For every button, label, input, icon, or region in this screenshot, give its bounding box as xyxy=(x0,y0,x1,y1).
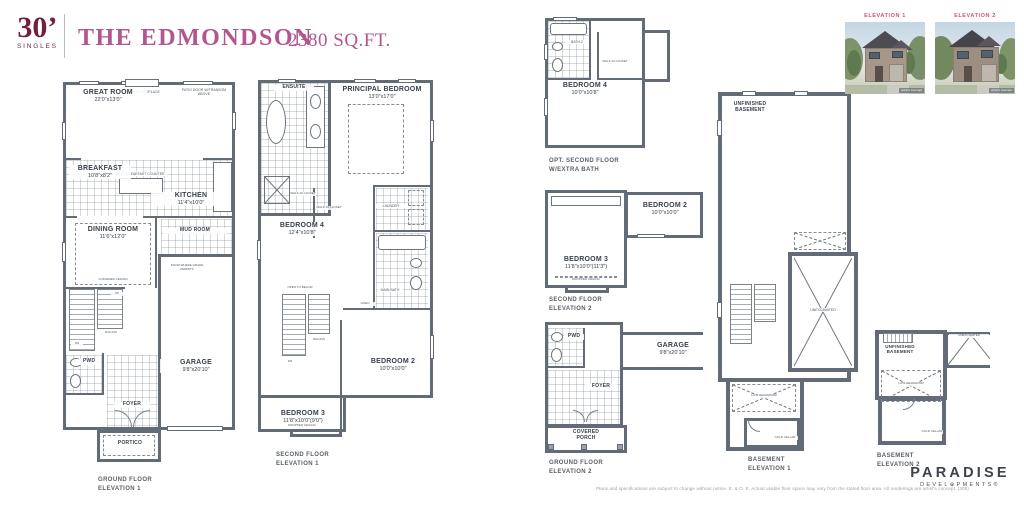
walk-in-closet-note: WALK-IN CLOSET xyxy=(601,60,629,64)
window-symbol xyxy=(742,91,756,96)
window-symbol xyxy=(354,79,376,83)
open-to-below-note: OPEN TO BELOW xyxy=(280,286,320,290)
house-garage-door xyxy=(889,64,904,82)
low-headroom-area xyxy=(732,384,796,412)
stairs-symbol xyxy=(754,284,776,322)
ensuite-label: ENSUITE xyxy=(274,85,314,91)
principal-bedroom-label: PRINCIPAL BEDROOM 13'0"x17'0" xyxy=(334,86,430,100)
bedroom-4-label: BEDROOM 4 12'4"x10'8" xyxy=(264,222,340,236)
patio-door-symbol xyxy=(183,81,213,85)
basement-elevation-2-plan: UNFINISHED BASEMENT UNEXCAVATED LOW HEAD… xyxy=(875,330,990,452)
wall xyxy=(597,78,643,80)
plan-caption-second1: SECOND FLOOR ELEVATION 1 xyxy=(276,451,329,469)
walk-in-closet-note: WALK-IN CLOSET xyxy=(290,192,316,196)
wall xyxy=(258,213,331,216)
model-name: THE EDMONDSON xyxy=(78,25,313,52)
low-headroom-label: LOW HEADROOM xyxy=(891,382,931,386)
bay-window-outline xyxy=(290,429,342,437)
porch-post xyxy=(581,444,587,450)
stairs-symbol xyxy=(730,284,752,344)
bed-outline xyxy=(348,104,404,174)
closet-symbol xyxy=(551,196,621,206)
powder-room-label: PWD xyxy=(564,334,584,340)
mud-room-label: MUD ROOM xyxy=(163,228,227,234)
window-symbol xyxy=(637,234,665,238)
low-headroom-label: LOW HEADROOM xyxy=(744,394,784,398)
fireplace-symbol xyxy=(125,79,159,87)
bay-window-outline xyxy=(565,285,609,293)
unfinished-basement-label: UNFINISHED BASEMENT xyxy=(879,344,921,354)
washer-symbol xyxy=(408,190,424,206)
dryer-symbol xyxy=(408,209,424,225)
toilet-symbol xyxy=(551,348,562,362)
ground-floor-elevation-2-plan: PWD FOYER GARAGE 9'8"x20'10" COVERED POR… xyxy=(545,322,705,458)
laundry-label: LAUNDRY xyxy=(376,204,406,208)
shower-symbol xyxy=(264,176,290,204)
mud-room-floor xyxy=(161,219,232,254)
low-headroom-area xyxy=(794,232,846,250)
window-symbol xyxy=(717,120,722,136)
sink-symbol xyxy=(552,42,563,51)
house-door xyxy=(964,66,972,82)
tree xyxy=(847,50,861,76)
dining-room-label: DINING ROOM 11'6"x12'0" xyxy=(77,226,149,240)
wall xyxy=(373,185,375,231)
garage-door-symbol xyxy=(167,426,223,431)
builder-logo-subtitle: DEVEL⊕PMENTS® xyxy=(901,482,1019,488)
builder-logo: PARADISE xyxy=(901,465,1019,481)
elevation-2-photo: Artist's Concept xyxy=(935,22,1015,94)
covered-porch-label: COVERED PORCH xyxy=(566,430,606,442)
window-symbol xyxy=(794,91,808,96)
plan-caption-second2: SECOND FLOOR ELEVATION 2 xyxy=(549,296,602,314)
house-window xyxy=(869,52,880,59)
stairs-symbol xyxy=(308,294,330,334)
cold-cellar-label: COLD CELLAR xyxy=(772,436,798,440)
header-divider xyxy=(64,14,65,58)
stairs-symbol xyxy=(883,333,913,343)
second-floor-elevation-1-plan: ENSUITE PRINCIPAL BEDROOM 13'0"x17'0" WA… xyxy=(258,80,438,440)
square-footage: 2380 SQ.FT. xyxy=(288,30,391,52)
foyer-label: FOYER xyxy=(585,384,617,390)
window-symbol xyxy=(79,81,99,85)
portico-label: PORTICO xyxy=(115,441,145,447)
garage-label: GARAGE 9'8"x20'10" xyxy=(160,359,232,373)
wall xyxy=(373,185,430,187)
patio-door-note: PATIO DOOR W/TRANSOM ABOVE xyxy=(181,88,227,97)
wall xyxy=(589,18,591,80)
window-symbol xyxy=(717,302,722,318)
plan-caption-ground1: GROUND FLOOR ELEVATION 1 xyxy=(98,476,152,494)
bedroom-2-label: BEDROOM 2 10'0"x10'0" xyxy=(633,202,697,216)
porch-post xyxy=(617,444,623,450)
wall xyxy=(155,216,157,288)
wall xyxy=(328,80,331,215)
elevation-1-photo-label: ELEVATION 1 xyxy=(845,13,925,19)
window-symbol xyxy=(430,335,434,359)
wall xyxy=(623,332,703,335)
sink-symbol xyxy=(310,94,321,109)
series-subtitle: SINGLES xyxy=(17,43,58,50)
wall xyxy=(65,393,104,395)
wall xyxy=(343,308,430,310)
wall xyxy=(158,254,161,427)
wall xyxy=(545,78,591,80)
window-symbol xyxy=(430,120,434,142)
bathtub-symbol xyxy=(550,23,587,35)
wall xyxy=(373,230,430,232)
toilet-symbol xyxy=(552,58,563,72)
house-door xyxy=(875,66,883,82)
basement-elevation-1-plan: UNFINISHED BASEMENT UNEXCAVATED LOW HEAD… xyxy=(718,92,860,454)
window-symbol xyxy=(257,240,261,260)
dropped-ceiling-note: DROPPED CEILING xyxy=(561,278,611,282)
series-number: 30’ xyxy=(17,13,58,43)
down-note: DN xyxy=(71,342,83,346)
foyer-floor xyxy=(548,370,620,424)
unfinished-basement-label: UNFINISHED BASEMENT xyxy=(728,102,772,114)
walk-in-closet-note: WALK-IN CLOSET xyxy=(316,206,342,210)
railing-note: RAILING xyxy=(306,338,332,342)
bathtub-symbol xyxy=(378,235,426,250)
second-floor-elevation-2-plan: BEDROOM 2 10'0"x10'0" BEDROOM 3 11'8"x10… xyxy=(545,190,705,302)
window-symbol xyxy=(398,79,416,83)
down-note: DN xyxy=(284,360,296,364)
powder-room-label: PWD xyxy=(77,359,101,365)
opt-second-floor-plan: BATH 2 WALK-IN CLOSET BEDROOM 4 10'0"x10… xyxy=(545,18,677,154)
plan-caption-opt-second: OPT. SECOND FLOOR W/EXTRA BATH xyxy=(549,157,619,175)
foyer-label: FOYER xyxy=(114,402,150,408)
plan-caption-ground2: GROUND FLOOR ELEVATION 2 xyxy=(549,459,603,477)
house-roof-gable xyxy=(977,36,1001,46)
elevation-2-photo-label: ELEVATION 2 xyxy=(935,13,1015,19)
window-symbol xyxy=(62,242,66,262)
sink-symbol xyxy=(310,124,321,139)
wall xyxy=(597,32,599,80)
elevation-1-photo: Artist's Concept xyxy=(845,22,925,94)
porch-post xyxy=(548,444,554,450)
brochure-page: 30’ SINGLES THE EDMONDSON 2380 SQ.FT. EL… xyxy=(0,0,1024,508)
sink-symbol xyxy=(551,332,563,342)
bedroom-3-label: BEDROOM 3 11'8"x10'0"(11'3") xyxy=(551,256,621,270)
linen-note: LINEN xyxy=(354,302,376,306)
garage-label: GARAGE 9'8"x20'10" xyxy=(645,342,701,356)
window-symbol xyxy=(62,122,66,140)
bedroom-4-label: BEDROOM 4 10'0"x10'8" xyxy=(553,82,617,96)
coffered-note: COFFERED CEILING xyxy=(89,278,137,282)
wall xyxy=(102,353,104,393)
great-room-label: GREAT ROOM 22'0"x13'0" xyxy=(69,89,147,103)
bath2-label: BATH 2 xyxy=(565,40,589,44)
kitchen-label: KITCHEN 11'4"x10'0" xyxy=(151,192,231,206)
ground-floor-elevation-1-plan: ELECTRIC FIREPLACE PATIO DOOR W/TRANSOM … xyxy=(63,82,241,466)
house-window xyxy=(957,51,969,59)
photo-credit: Artist's Concept xyxy=(899,88,924,93)
wall xyxy=(63,216,77,218)
cold-cellar-label: COLD CELLAR xyxy=(921,430,943,434)
wall xyxy=(373,230,375,310)
stairs-symbol xyxy=(282,294,306,356)
dropped-ceiling-note: DROPPED CEILING xyxy=(278,424,326,428)
breakfast-label: BREAKFAST 10'8"x8'2" xyxy=(69,165,131,179)
house-window xyxy=(981,50,993,58)
wall xyxy=(158,254,235,257)
window-symbol xyxy=(232,112,236,130)
bedroom-2-label: BEDROOM 2 10'0"x10'0" xyxy=(358,358,428,372)
wall xyxy=(623,367,703,370)
house-window xyxy=(892,51,903,58)
grade-door-note: DOOR WHERE GRADE PERMITS xyxy=(167,264,207,272)
closet-wing-walls xyxy=(642,30,670,82)
unexcavated-label: UNEXCAVATED xyxy=(798,308,848,312)
series-badge: 30’ SINGLES xyxy=(17,13,58,50)
toilet-symbol xyxy=(410,276,422,290)
plan-caption-basement1: BASEMENT ELEVATION 1 xyxy=(748,456,791,474)
window-symbol xyxy=(544,98,548,116)
bathtub-symbol xyxy=(266,100,286,144)
wall xyxy=(545,366,585,368)
unexcavated-label: UNEXCAVATED xyxy=(949,334,989,338)
house-garage-door xyxy=(981,64,997,82)
photo-credit: Artist's Concept xyxy=(989,88,1014,93)
main-bath-label: MAIN BATH xyxy=(377,288,403,292)
railing-note: RAILING xyxy=(99,331,123,335)
wall xyxy=(340,320,342,432)
up-note: UP xyxy=(111,292,123,296)
sink-symbol xyxy=(410,258,422,268)
toilet-symbol xyxy=(70,374,81,388)
